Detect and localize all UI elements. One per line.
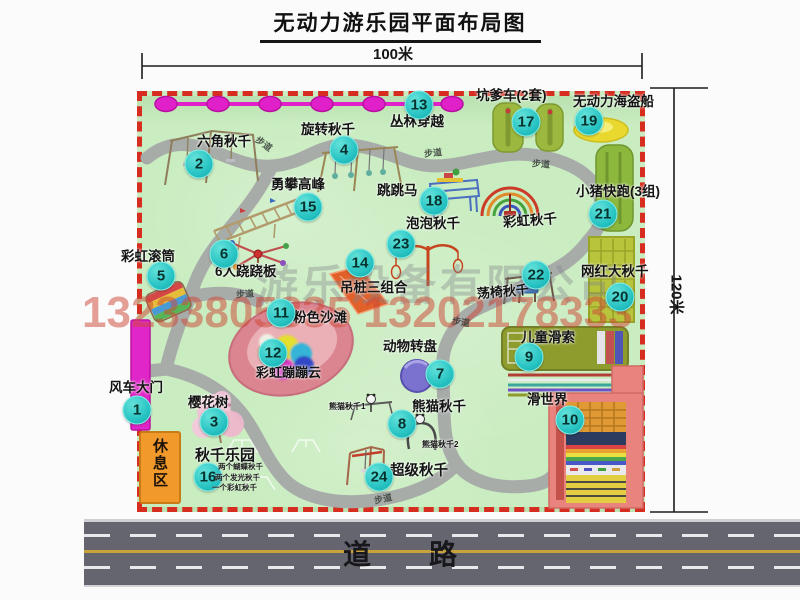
attraction-badge-2: 2 [185, 150, 214, 179]
attraction-label-14: 吊桩三组合 [340, 281, 408, 296]
attraction-label-10: 滑世界 [527, 393, 568, 408]
attraction-badge-12: 12 [259, 339, 288, 368]
extra-label-1: 熊猫秋千1 [329, 403, 365, 412]
attraction-label-21: 小猪快跑(3组) [576, 185, 660, 200]
page-title: 无动力游乐园平面布局图 [260, 7, 541, 43]
attraction-badge-13: 13 [405, 91, 434, 120]
attraction-badge-22: 22 [522, 261, 551, 290]
dimension-horizontal-label: 100米 [353, 43, 433, 64]
note-line: 两个蝴蝶秋千 [218, 462, 263, 473]
attraction-badge-8: 8 [388, 410, 417, 439]
attraction-badge-10: 10 [556, 406, 585, 435]
path-label-1: 步道 [423, 145, 442, 160]
path-label-4: 步道 [451, 314, 471, 329]
attraction-badge-3: 3 [200, 408, 229, 437]
attraction-label-24: 超级秋千 [390, 464, 448, 480]
attraction-badge-1: 1 [123, 396, 152, 425]
park-layout-screenshot: 无动力游乐园平面布局图 100米 120米 [0, 0, 800, 600]
attraction-badge-17: 17 [512, 108, 541, 137]
attraction-badge-5: 5 [147, 262, 176, 291]
attraction-label-2: 六角秋千 [197, 135, 251, 150]
swing-park-notes: 两个蝴蝶秋千 两个发光秋千 一个彩虹秋千 [218, 462, 263, 494]
attraction-badge-9: 9 [515, 343, 544, 372]
attraction-badge-11: 11 [267, 299, 296, 328]
note-line: 两个发光秋千 [215, 473, 263, 484]
road-label: 道路 [0, 533, 800, 573]
rest-area-label: 休息区 [149, 438, 170, 500]
attraction-label-8: 熊猫秋千 [412, 400, 466, 415]
attraction-badge-21: 21 [589, 200, 618, 229]
attraction-label-1: 风车大门 [109, 381, 163, 396]
attraction-badge-7: 7 [426, 360, 455, 389]
attraction-badge-14: 14 [346, 249, 375, 278]
attraction-label-11: 粉色沙滩 [293, 311, 347, 326]
attraction-badge-19: 19 [575, 107, 604, 136]
attraction-label-18: 跳跳马 [377, 184, 418, 199]
note-line: 一个彩虹秋千 [212, 483, 263, 494]
attraction-label-23: 泡泡秋千 [406, 217, 460, 232]
attraction-label-7: 动物转盘 [383, 340, 437, 355]
attraction-badge-23: 23 [387, 230, 416, 259]
path-label-2: 步道 [532, 156, 551, 170]
page-title-wrap: 无动力游乐园平面布局图 [0, 7, 800, 43]
extra-label-2: 熊猫秋千2 [422, 441, 458, 450]
dimension-vertical-label: 120米 [667, 266, 688, 324]
attraction-label-15: 勇攀高峰 [271, 178, 325, 193]
attraction-label-17: 坑爹车(2套) [476, 89, 547, 104]
attraction-label-20: 网红大秋千 [581, 265, 649, 280]
attraction-badge-4: 4 [330, 136, 359, 165]
attraction-badge-18: 18 [420, 187, 449, 216]
attraction-badge-24: 24 [365, 463, 394, 492]
attraction-label-12: 彩虹蹦蹦云 [256, 366, 321, 380]
attraction-badge-20: 20 [606, 283, 635, 312]
attraction-badge-6: 6 [210, 240, 239, 269]
path-label-3: 步道 [236, 286, 255, 300]
attraction-badge-15: 15 [294, 193, 323, 222]
